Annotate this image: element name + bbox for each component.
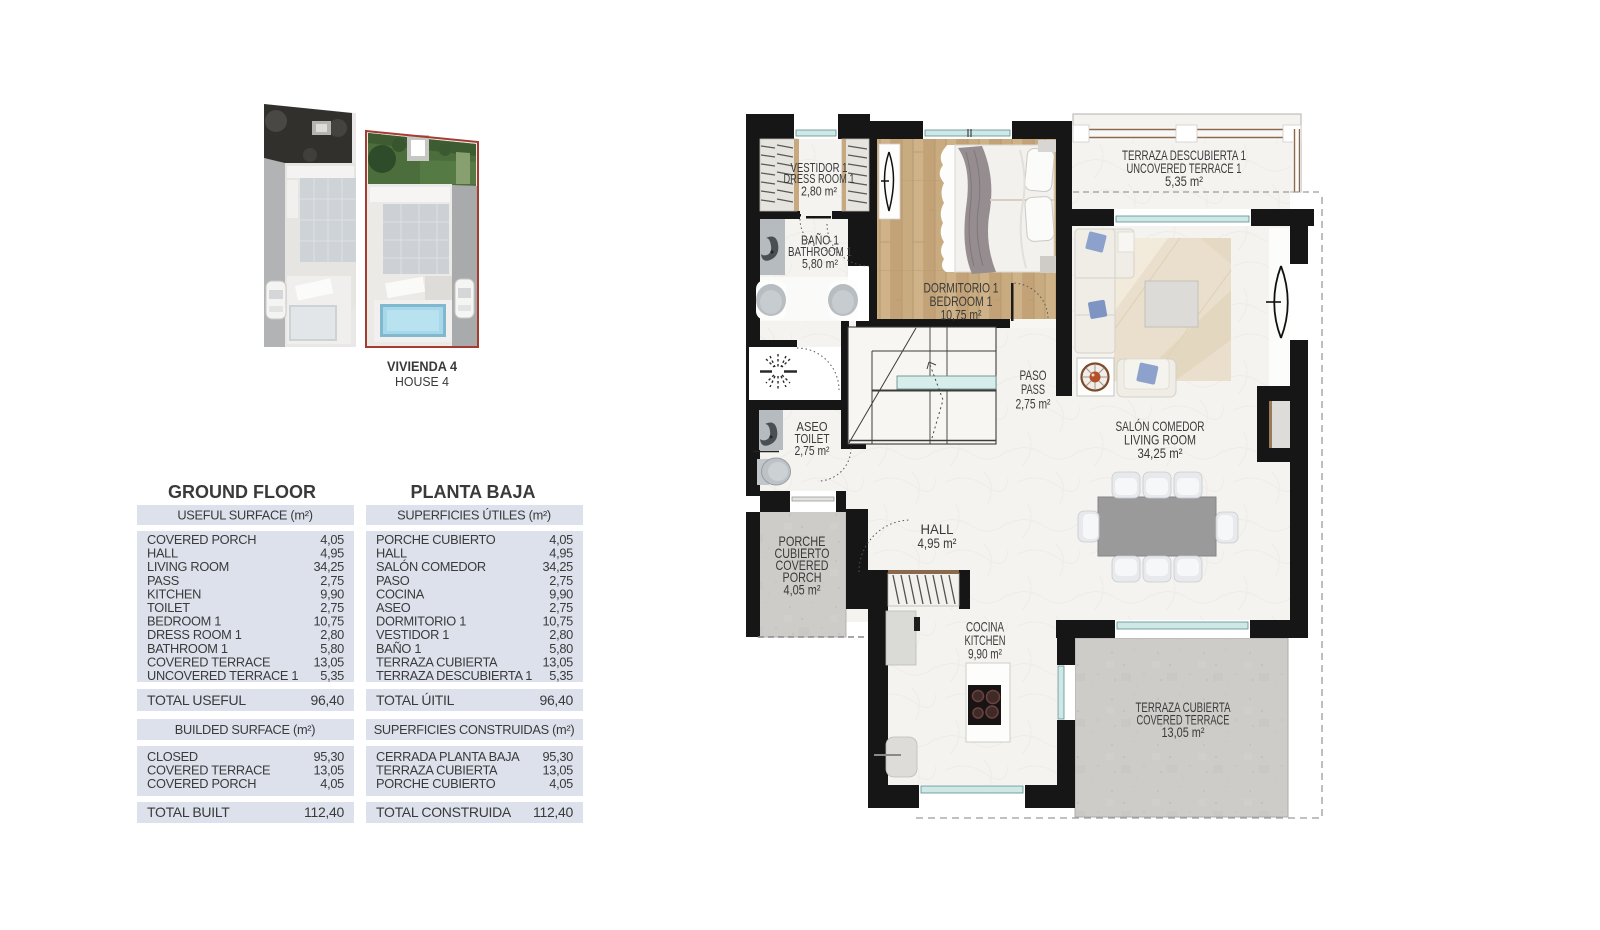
svg-text:BUILDED SURFACE (m²): BUILDED SURFACE (m²) — [175, 722, 316, 737]
svg-text:2,75 m²: 2,75 m² — [795, 443, 831, 458]
svg-text:4,05: 4,05 — [549, 776, 573, 791]
svg-text:4,05 m²: 4,05 m² — [784, 582, 821, 598]
svg-text:TOTAL BUILT: TOTAL BUILT — [147, 804, 230, 820]
svg-text:13,05 m²: 13,05 m² — [1162, 724, 1205, 740]
svg-text:TOTAL USEFUL: TOTAL USEFUL — [147, 692, 246, 708]
svg-text:UNCOVERED TERRACE 1: UNCOVERED TERRACE 1 — [147, 668, 298, 683]
svg-text:HOUSE 4: HOUSE 4 — [395, 374, 449, 389]
svg-text:9,90 m²: 9,90 m² — [968, 646, 1002, 662]
svg-text:5,35: 5,35 — [549, 668, 573, 683]
svg-text:VIVIENDA 4: VIVIENDA 4 — [387, 358, 457, 374]
svg-text:2,80 m²: 2,80 m² — [801, 184, 838, 199]
svg-text:2,75 m²: 2,75 m² — [1016, 396, 1051, 412]
svg-text:34,25 m²: 34,25 m² — [1138, 445, 1183, 461]
svg-text:5,35: 5,35 — [320, 668, 344, 683]
svg-text:112,40: 112,40 — [533, 804, 573, 820]
svg-text:5,80 m²: 5,80 m² — [802, 256, 839, 271]
svg-text:SUPERFICIES ÚTILES (m²): SUPERFICIES ÚTILES (m²) — [397, 508, 551, 523]
svg-text:TOTAL ÚITIL: TOTAL ÚITIL — [376, 692, 455, 708]
svg-text:10,75 m²: 10,75 m² — [941, 307, 982, 323]
svg-text:SUPERFICIES CONSTRUIDAS (m²): SUPERFICIES CONSTRUIDAS (m²) — [374, 722, 575, 737]
svg-text:COVERED PORCH: COVERED PORCH — [147, 776, 256, 791]
svg-text:96,40: 96,40 — [539, 692, 573, 708]
svg-text:PORCHE CUBIERTO: PORCHE CUBIERTO — [376, 776, 496, 791]
svg-text:USEFUL SURFACE (m²): USEFUL SURFACE (m²) — [177, 508, 312, 523]
svg-text:PLANTA BAJA: PLANTA BAJA — [411, 482, 536, 502]
svg-text:112,40: 112,40 — [304, 804, 344, 820]
svg-text:96,40: 96,40 — [310, 692, 344, 708]
svg-text:TOTAL CONSTRUIDA: TOTAL CONSTRUIDA — [376, 804, 512, 820]
svg-text:TERRAZA DESCUBIERTA 1: TERRAZA DESCUBIERTA 1 — [376, 668, 532, 683]
svg-text:GROUND FLOOR: GROUND FLOOR — [168, 482, 316, 502]
svg-text:4,95 m²: 4,95 m² — [918, 535, 957, 551]
svg-text:4,05: 4,05 — [320, 776, 344, 791]
svg-text:5,35 m²: 5,35 m² — [1165, 173, 1203, 189]
